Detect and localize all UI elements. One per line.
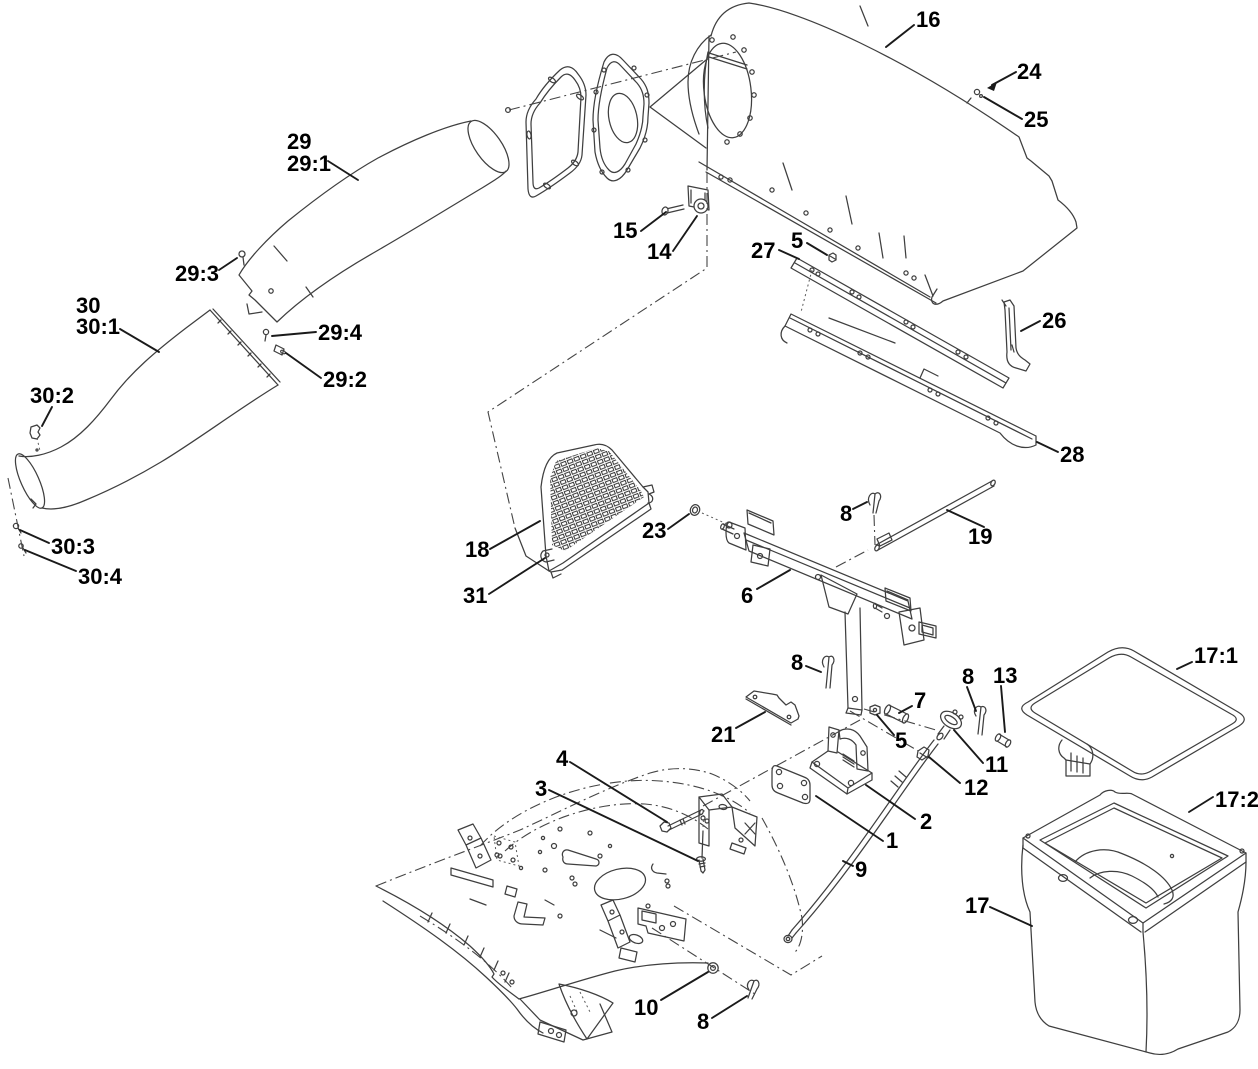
svg-text:8: 8 (840, 501, 852, 526)
svg-text:16: 16 (916, 7, 940, 32)
svg-text:29:3: 29:3 (175, 261, 219, 286)
svg-text:2: 2 (920, 809, 932, 834)
svg-text:7: 7 (914, 688, 926, 713)
svg-text:29:4: 29:4 (318, 320, 363, 345)
svg-text:10: 10 (634, 995, 658, 1020)
svg-text:17:2: 17:2 (1215, 787, 1258, 812)
svg-text:17: 17 (965, 893, 989, 918)
svg-text:30:1: 30:1 (76, 314, 120, 339)
svg-text:8: 8 (791, 650, 803, 675)
svg-text:31: 31 (463, 583, 487, 608)
svg-text:18: 18 (465, 537, 489, 562)
svg-text:6: 6 (741, 583, 753, 608)
svg-text:26: 26 (1042, 308, 1066, 333)
svg-text:14: 14 (647, 239, 672, 264)
svg-text:23: 23 (642, 518, 666, 543)
svg-text:4: 4 (556, 746, 569, 771)
svg-text:5: 5 (895, 728, 907, 753)
svg-text:24: 24 (1017, 59, 1042, 84)
svg-text:5: 5 (791, 228, 803, 253)
svg-text:27: 27 (751, 238, 775, 263)
svg-text:30:3: 30:3 (51, 534, 95, 559)
svg-text:25: 25 (1024, 107, 1048, 132)
svg-text:9: 9 (855, 857, 867, 882)
svg-text:13: 13 (993, 663, 1017, 688)
svg-text:12: 12 (964, 775, 988, 800)
svg-text:17:1: 17:1 (1194, 643, 1238, 668)
svg-text:29:1: 29:1 (287, 151, 331, 176)
svg-text:28: 28 (1060, 442, 1084, 467)
svg-text:15: 15 (613, 218, 637, 243)
svg-text:30:4: 30:4 (78, 564, 123, 589)
svg-text:8: 8 (697, 1009, 709, 1034)
svg-text:30:2: 30:2 (30, 383, 74, 408)
svg-text:19: 19 (968, 524, 992, 549)
svg-text:1: 1 (886, 828, 898, 853)
svg-text:21: 21 (711, 722, 735, 747)
svg-text:8: 8 (962, 664, 974, 689)
svg-text:3: 3 (535, 776, 547, 801)
svg-text:29:2: 29:2 (323, 367, 367, 392)
svg-text:11: 11 (985, 752, 1008, 777)
